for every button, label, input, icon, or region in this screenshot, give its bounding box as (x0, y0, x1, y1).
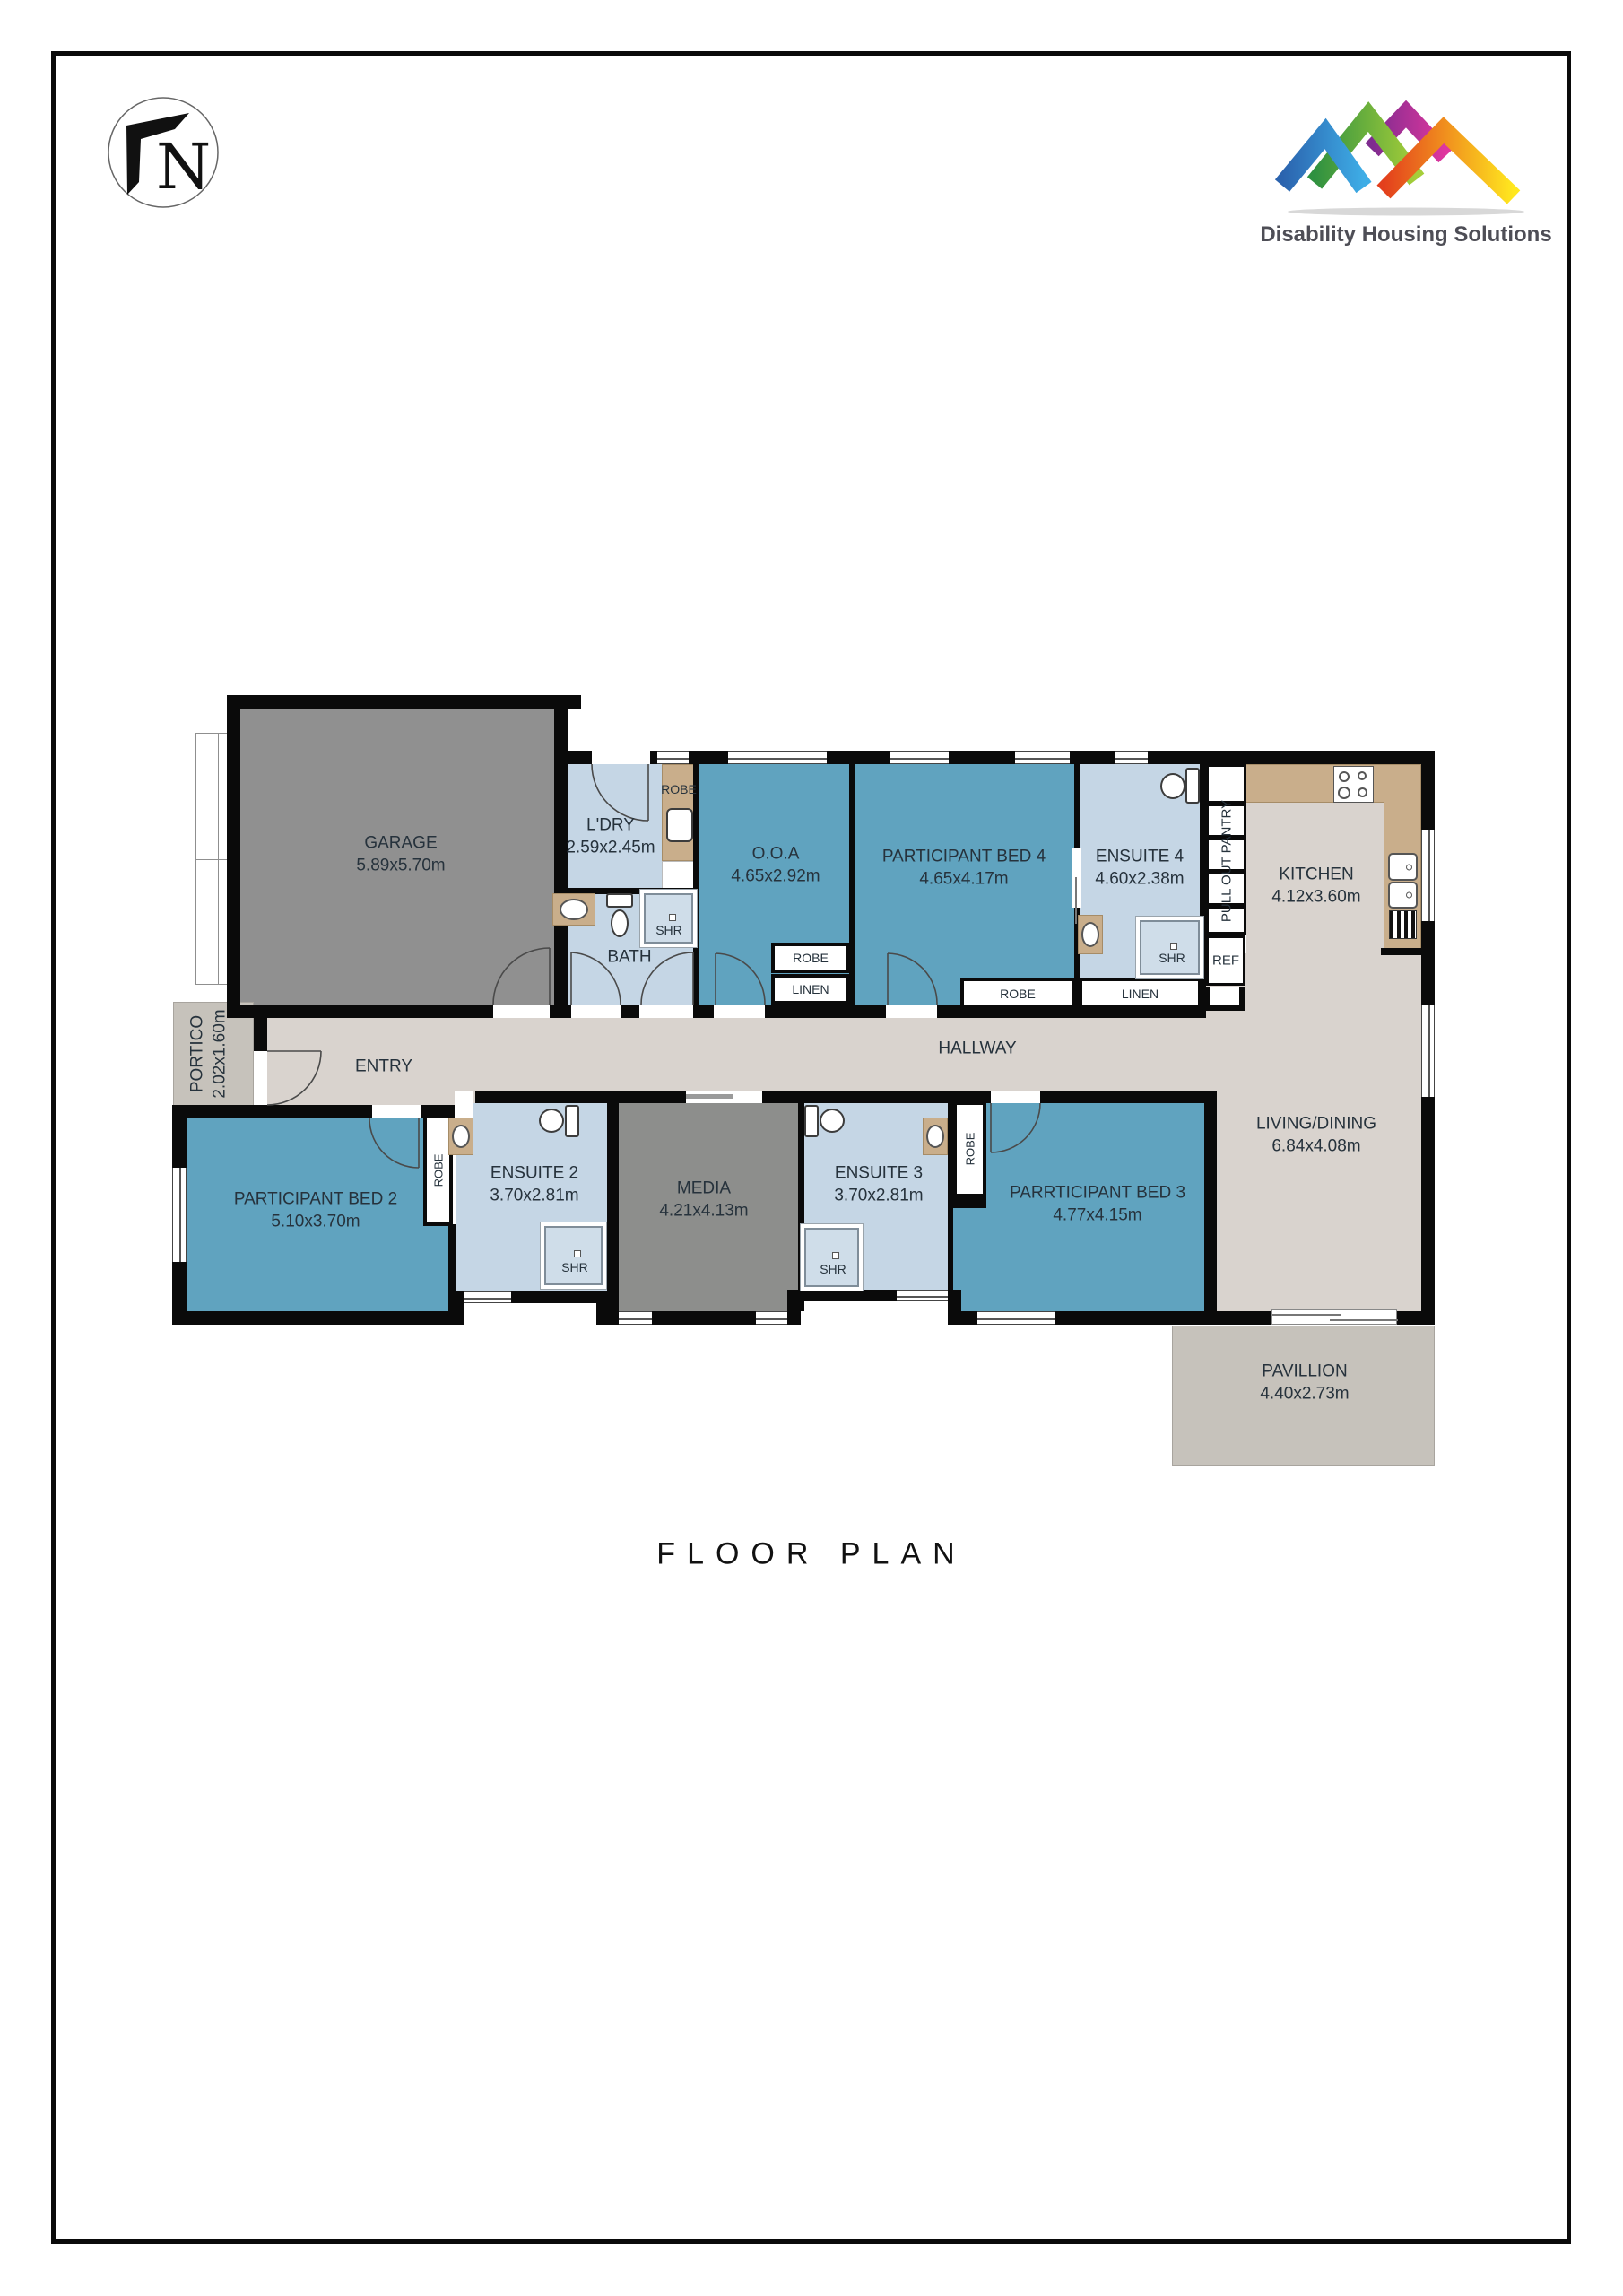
room-dims: 2.59x2.45m (566, 837, 655, 859)
room-label-living: LIVING/DINING 6.84x4.08m (1256, 1113, 1376, 1157)
room-dims: 3.70x2.81m (834, 1185, 923, 1207)
room-label-entry: ENTRY (355, 1057, 412, 1079)
room-label-ldry: L'DRY 2.59x2.45m (566, 814, 655, 858)
floor-plan-page: N Disability Housing Solutions (0, 0, 1623, 2296)
room-dims: 4.12x3.60m (1271, 886, 1360, 909)
room-dims: 3.70x2.81m (490, 1185, 578, 1207)
room-name: PARTICIPANT BED 4 (882, 846, 1046, 868)
room-name: PARRTICIPANT BED 3 (1010, 1182, 1185, 1205)
room-label-ensuite2: ENSUITE 2 3.70x2.81m (490, 1162, 578, 1206)
room-name: ENSUITE 3 (834, 1162, 923, 1185)
robe-label: ROBE (661, 782, 697, 796)
room-label-bed4: PARTICIPANT BED 4 4.65x4.17m (882, 846, 1046, 890)
room-name: ENSUITE 2 (490, 1162, 578, 1185)
room-dims: 5.89x5.70m (356, 855, 445, 877)
room-name: GARAGE (356, 832, 445, 855)
room-label-portico: PORTICO 2.02x1.60m (187, 1009, 230, 1098)
room-label-garage: GARAGE 5.89x5.70m (356, 832, 445, 876)
room-label-bed3: PARRTICIPANT BED 3 4.77x4.15m (1010, 1182, 1185, 1226)
room-name: ENSUITE 4 (1095, 846, 1184, 868)
room-label-pavillion: PAVILLION 4.40x2.73m (1260, 1361, 1349, 1405)
room-name: PAVILLION (1260, 1361, 1349, 1383)
room-name: L'DRY (566, 814, 655, 837)
room-label-kitchen: KITCHEN 4.12x3.60m (1271, 864, 1360, 908)
room-name: BATH (607, 947, 651, 970)
room-dims: 5.10x3.70m (234, 1211, 397, 1233)
room-name: ENTRY (355, 1057, 412, 1079)
room-dims: 6.84x4.08m (1256, 1135, 1376, 1158)
room-name: PARTICIPANT BED 2 (234, 1188, 397, 1211)
door-swings-layer (0, 0, 1623, 2296)
room-name: LIVING/DINING (1256, 1113, 1376, 1135)
room-dims: 4.60x2.38m (1095, 868, 1184, 891)
room-name: HALLWAY (938, 1039, 1016, 1061)
room-label-ooa: O.O.A 4.65x2.92m (731, 843, 820, 887)
room-dims: 4.65x2.92m (731, 865, 820, 888)
room-dims: 4.40x2.73m (1260, 1383, 1349, 1405)
room-dims: 4.65x4.17m (882, 868, 1046, 891)
room-label-media: MEDIA 4.21x4.13m (659, 1178, 748, 1222)
room-label-ensuite3: ENSUITE 3 3.70x2.81m (834, 1162, 923, 1206)
room-label-bed2: PARTICIPANT BED 2 5.10x3.70m (234, 1188, 397, 1232)
room-name: KITCHEN (1271, 864, 1360, 886)
room-name: O.O.A (731, 843, 820, 865)
room-name: PORTICO (187, 1009, 209, 1098)
room-label-bath: BATH (607, 947, 651, 970)
room-label-hallway: HALLWAY (938, 1039, 1016, 1061)
room-dims: 4.21x4.13m (659, 1200, 748, 1222)
room-name: MEDIA (659, 1178, 748, 1200)
room-dims: 4.77x4.15m (1010, 1205, 1185, 1227)
room-dims: 2.02x1.60m (209, 1009, 231, 1098)
room-label-ensuite4: ENSUITE 4 4.60x2.38m (1095, 846, 1184, 890)
page-title: FLOOR PLAN (656, 1537, 966, 1572)
